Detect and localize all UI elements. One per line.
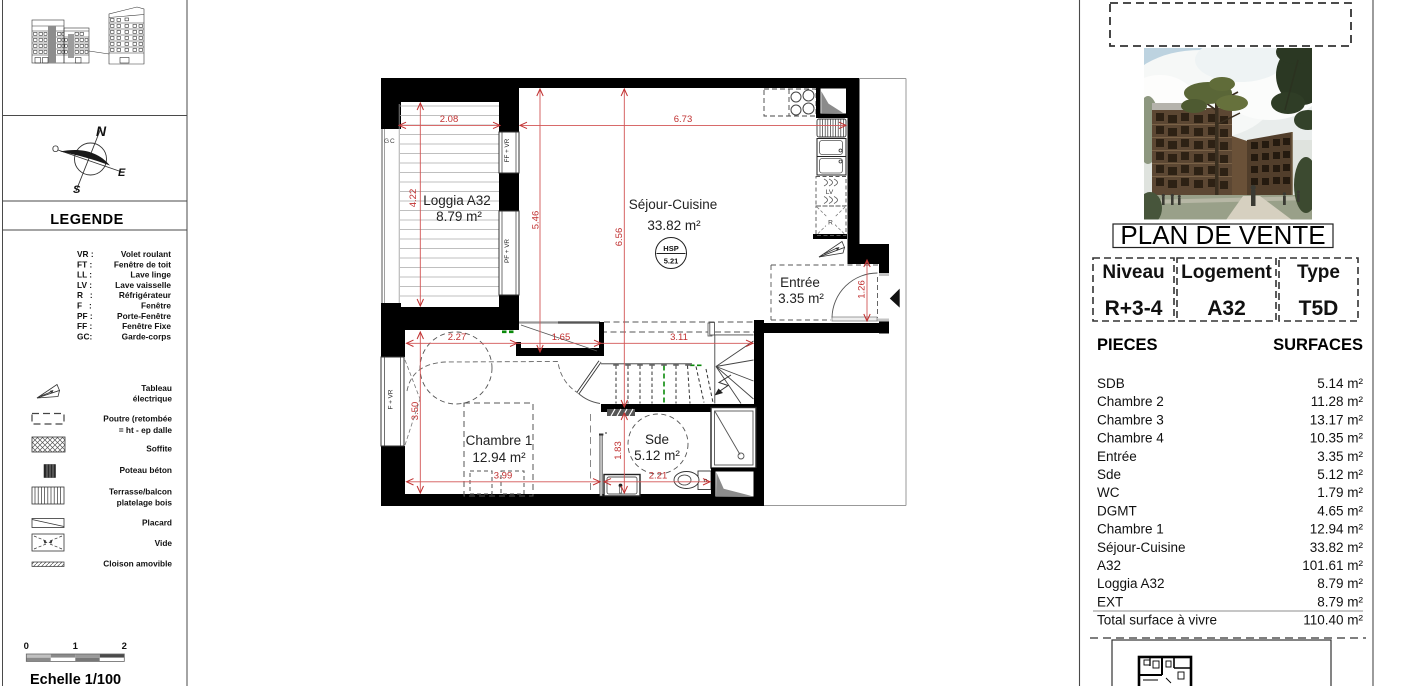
svg-text:LV: LV: [826, 189, 834, 196]
svg-text:GC:: GC:: [77, 331, 92, 341]
svg-text:SDB: SDB: [1097, 376, 1125, 391]
svg-text:12.94 m²: 12.94 m²: [1310, 522, 1364, 537]
svg-text:4.65 m²: 4.65 m²: [1317, 503, 1363, 518]
svg-text:WC: WC: [1097, 485, 1120, 500]
svg-text:R: R: [828, 220, 833, 227]
svg-text:DGMT: DGMT: [1097, 503, 1137, 518]
svg-text:FF + VR: FF + VR: [504, 138, 511, 162]
svg-text:5.21: 5.21: [664, 257, 679, 266]
svg-text:Chambre 3: Chambre 3: [1097, 412, 1164, 427]
svg-text:Lave linge: Lave linge: [130, 270, 171, 280]
svg-text:8.79 m²: 8.79 m²: [1317, 594, 1363, 609]
svg-text:GC: GC: [384, 138, 396, 145]
svg-text:Séjour-Cuisine: Séjour-Cuisine: [629, 197, 718, 212]
svg-text:1: 1: [73, 641, 79, 652]
svg-text:Lave vaisselle: Lave vaisselle: [115, 280, 171, 290]
svg-text:Entrée: Entrée: [780, 275, 820, 290]
svg-text:A32: A32: [1097, 558, 1121, 573]
svg-text:Séjour-Cuisine: Séjour-Cuisine: [1097, 540, 1186, 555]
svg-text:FT :: FT :: [77, 259, 92, 269]
svg-text:3.50: 3.50: [410, 402, 421, 421]
svg-text:PLAN DE VENTE: PLAN DE VENTE: [1120, 220, 1325, 250]
svg-text:Fenêtre: Fenêtre: [141, 301, 171, 311]
svg-text:2: 2: [122, 641, 127, 652]
svg-text:8.79 m²: 8.79 m²: [1317, 576, 1363, 591]
svg-text:VR :: VR :: [77, 249, 94, 259]
svg-text:12.94 m²: 12.94 m²: [472, 450, 526, 465]
svg-text:Sde: Sde: [645, 432, 669, 447]
svg-text:10.35 m²: 10.35 m²: [1310, 431, 1364, 446]
svg-text:1.83: 1.83: [613, 441, 624, 460]
svg-text:5.46: 5.46: [531, 211, 542, 230]
svg-text:6.56: 6.56: [614, 228, 625, 247]
svg-text:PF + VR: PF + VR: [504, 239, 511, 263]
svg-text:3.99: 3.99: [494, 471, 513, 482]
svg-text:SURFACES: SURFACES: [1273, 336, 1363, 354]
svg-text:Porte-Fenêtre: Porte-Fenêtre: [117, 311, 171, 321]
svg-text:Fenêtre de toit: Fenêtre de toit: [114, 259, 171, 269]
svg-text:33.82 m²: 33.82 m²: [1310, 540, 1364, 555]
svg-text:HSP: HSP: [663, 244, 678, 253]
svg-text:Garde-corps: Garde-corps: [122, 331, 172, 341]
svg-text:Logement: Logement: [1181, 262, 1272, 283]
svg-text:Terrasse/balcon: Terrasse/balcon: [109, 487, 172, 497]
svg-text:= ht - ep dalle: = ht - ep dalle: [119, 425, 173, 435]
svg-text:Soffite: Soffite: [146, 444, 172, 454]
svg-text:F :: F :: [77, 301, 92, 311]
svg-text:33.82 m²: 33.82 m²: [647, 218, 701, 233]
svg-text:5.12 m²: 5.12 m²: [1317, 467, 1363, 482]
svg-text:5.12 m²: 5.12 m²: [634, 448, 680, 463]
svg-text:O: O: [52, 144, 59, 154]
svg-text:Loggia A32: Loggia A32: [423, 193, 491, 208]
svg-text:6.73: 6.73: [674, 114, 693, 125]
svg-text:Fenêtre Fixe: Fenêtre Fixe: [122, 321, 171, 331]
svg-text:platelage bois: platelage bois: [117, 498, 173, 508]
svg-text:Réfrigérateur: Réfrigérateur: [119, 290, 172, 300]
svg-text:1.79 m²: 1.79 m²: [1317, 485, 1363, 500]
svg-text:Chambre 4: Chambre 4: [1097, 431, 1164, 446]
svg-text:Total surface à vivre: Total surface à vivre: [1097, 613, 1217, 628]
svg-text:Vide: Vide: [155, 538, 173, 548]
svg-text:LV :: LV :: [77, 280, 92, 290]
svg-text:5.14 m²: 5.14 m²: [1317, 376, 1363, 391]
svg-text:Poteau béton: Poteau béton: [119, 465, 172, 475]
svg-text:A32: A32: [1207, 297, 1246, 320]
svg-text:Chambre 2: Chambre 2: [1097, 394, 1164, 409]
svg-text:Placard: Placard: [142, 518, 172, 528]
svg-text:EXT: EXT: [1097, 594, 1123, 609]
svg-text:F + VR: F + VR: [388, 389, 395, 409]
svg-text:N: N: [96, 123, 107, 139]
svg-text:Echelle 1/100: Echelle 1/100: [30, 672, 121, 686]
svg-text:Entrée: Entrée: [1097, 449, 1137, 464]
svg-text:Chambre 1: Chambre 1: [1097, 522, 1164, 537]
svg-text:1.26: 1.26: [857, 280, 868, 299]
svg-text:R+3-4: R+3-4: [1105, 297, 1163, 320]
svg-text:3.35 m²: 3.35 m²: [778, 291, 824, 306]
svg-text:S: S: [73, 184, 81, 196]
svg-text:8.79 m²: 8.79 m²: [436, 209, 482, 224]
svg-text:LL :: LL :: [77, 270, 92, 280]
svg-text:2.21: 2.21: [649, 471, 668, 482]
svg-text:LEGENDE: LEGENDE: [50, 212, 124, 228]
svg-text:4.22: 4.22: [408, 189, 419, 208]
svg-text:0: 0: [24, 641, 29, 652]
svg-text:R :: R :: [77, 290, 93, 300]
svg-text:3.35 m²: 3.35 m²: [1317, 449, 1363, 464]
svg-text:Cloison amovible: Cloison amovible: [103, 559, 172, 569]
svg-text:13.17 m²: 13.17 m²: [1310, 412, 1364, 427]
svg-text:2.27: 2.27: [448, 332, 467, 343]
svg-text:PF :: PF :: [77, 311, 93, 321]
svg-text:E: E: [118, 167, 126, 179]
svg-text:110.40 m²: 110.40 m²: [1303, 613, 1363, 628]
svg-text:101.61 m²: 101.61 m²: [1302, 558, 1363, 573]
svg-text:1.65: 1.65: [552, 332, 571, 343]
svg-text:Type: Type: [1297, 262, 1340, 283]
svg-text:Niveau: Niveau: [1102, 262, 1164, 283]
svg-text:FF :: FF :: [77, 321, 92, 331]
svg-text:Poutre (retombée: Poutre (retombée: [103, 414, 172, 424]
svg-text:Loggia A32: Loggia A32: [1097, 576, 1165, 591]
svg-text:PIECES: PIECES: [1097, 336, 1158, 354]
svg-text:3.11: 3.11: [670, 332, 688, 343]
svg-text:Chambre 1: Chambre 1: [466, 433, 533, 448]
svg-text:électrique: électrique: [133, 394, 173, 404]
svg-text:11.28 m²: 11.28 m²: [1311, 394, 1364, 409]
svg-text:Sde: Sde: [1097, 467, 1121, 482]
svg-text:T5D: T5D: [1299, 297, 1339, 320]
svg-text:Volet roulant: Volet roulant: [121, 249, 171, 259]
svg-text:2.08: 2.08: [440, 114, 459, 125]
svg-text:Tableau: Tableau: [141, 383, 172, 393]
